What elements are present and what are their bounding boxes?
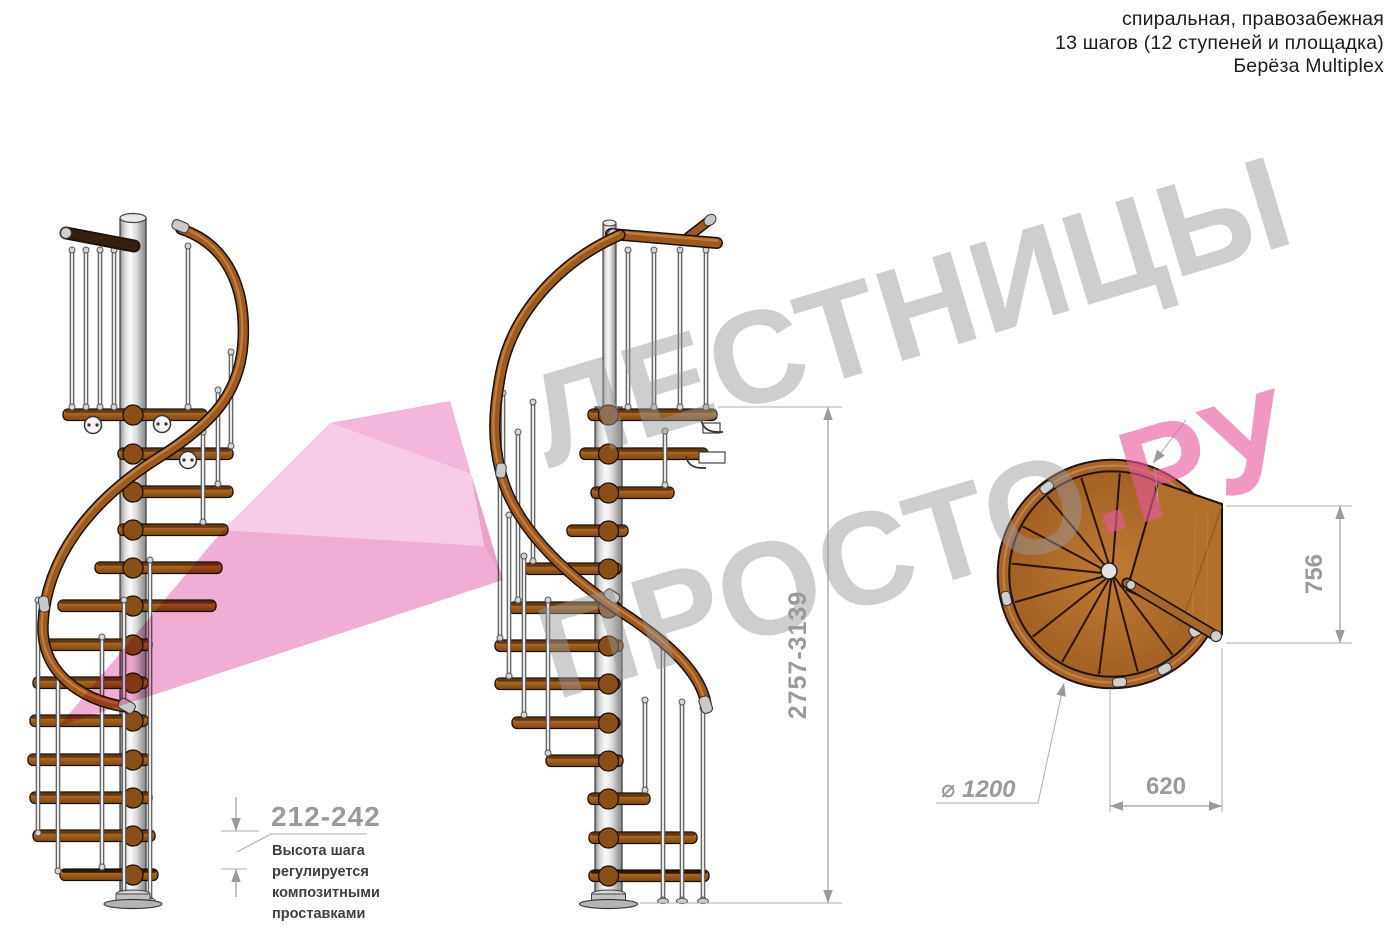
mount-screw <box>95 423 98 426</box>
mount-screw <box>164 422 167 425</box>
step-pole-boss <box>599 828 619 848</box>
handrail-end-ball <box>61 228 72 239</box>
mount-screw <box>87 423 90 426</box>
step-pole-boss <box>599 521 619 541</box>
baluster-joint <box>642 787 648 793</box>
base-flange <box>580 900 638 909</box>
baluster-joint <box>200 519 206 525</box>
baluster-joint <box>121 597 127 603</box>
drawing-canvas: спиральная, правозабежная 13 шагов (12 с… <box>0 0 1400 937</box>
baluster-joint <box>677 247 683 253</box>
dim-diameter-label: ⌀ 1200 <box>941 776 1016 803</box>
handrail-joint <box>38 595 50 612</box>
mount-screw <box>190 458 193 461</box>
baluster-joint <box>147 557 153 563</box>
note-line-2: регулируется <box>272 864 369 880</box>
title-block: спиральная, правозабежная 13 шагов (12 с… <box>1055 8 1384 79</box>
baluster-joint <box>497 635 503 641</box>
dim-arrowhead <box>1335 630 1345 643</box>
dim-arrowhead <box>823 890 833 903</box>
title-material: Берёза Multiplex <box>1055 55 1384 79</box>
step-pole-boss <box>599 483 619 503</box>
baluster-joint <box>651 247 657 253</box>
step-stub <box>699 452 725 463</box>
baluster-joint <box>111 404 117 410</box>
dim-arrowhead <box>231 869 241 882</box>
baluster-joint <box>69 247 75 253</box>
dim-arrowhead <box>1335 506 1345 519</box>
step-pole-boss <box>599 751 619 771</box>
note-line-3: композитными <box>272 885 380 901</box>
mount-disk <box>154 416 171 433</box>
baluster-joint <box>69 404 75 410</box>
dim-arrowhead <box>1057 682 1069 697</box>
base-flange <box>104 900 162 909</box>
dim-arrowhead <box>231 818 241 831</box>
handrail-bottom-cap <box>698 695 714 715</box>
step-pole-boss <box>123 520 143 540</box>
mount-screw <box>156 422 159 425</box>
note-line-1: Высота шага <box>272 843 366 859</box>
baluster-joint <box>83 247 89 253</box>
baluster-joint <box>506 512 512 518</box>
baluster-joint <box>545 750 551 756</box>
baluster-joint <box>228 349 234 355</box>
baluster-joint <box>228 443 234 449</box>
mount-disk <box>85 417 102 434</box>
plan-rail-joint <box>1127 581 1136 590</box>
baluster-joint <box>679 699 685 705</box>
baluster-joint <box>521 712 527 718</box>
dim-step-height: 212-242 Высота шага регулируется компози… <box>221 797 381 922</box>
baluster-joint <box>215 387 221 393</box>
dim-arrowhead <box>1110 801 1123 811</box>
dim-step-height-label: 212-242 <box>271 801 381 832</box>
baluster-joint <box>99 634 105 640</box>
step-pole-boss <box>599 789 619 809</box>
dim-arrowhead <box>1209 801 1222 811</box>
title-type: спиральная, правозабежная <box>1055 8 1384 32</box>
baluster-joint <box>83 404 89 410</box>
step-pole-boss <box>123 444 143 464</box>
baluster-joint <box>215 481 221 487</box>
dim-landing-depth-label: 756 <box>1301 554 1328 594</box>
baluster-joint <box>662 482 668 488</box>
baluster-joint <box>97 247 103 253</box>
dim-exit-width-label: 620 <box>1146 773 1186 800</box>
pole-top-cap <box>120 214 146 223</box>
baluster-joint <box>625 247 631 253</box>
staircase-technical-drawing: 2757-3139 212-242 Высота шага регулирует… <box>0 0 1400 937</box>
plan-center-pole <box>1101 563 1117 579</box>
baluster-joint <box>185 243 191 249</box>
baluster-joint <box>506 673 512 679</box>
baluster-joint <box>185 404 191 410</box>
mount-disk <box>180 452 197 469</box>
watermark-line2-pink: .РУ <box>1065 361 1310 563</box>
mount-screw <box>182 458 185 461</box>
step-pole-boss <box>123 558 143 578</box>
step-pole-boss <box>123 405 143 425</box>
handrail-top-cap <box>171 218 191 234</box>
baluster-joint <box>35 830 41 836</box>
dim-diameter: ⌀ 1200 <box>936 683 1064 803</box>
rim-joint <box>1112 677 1127 687</box>
baluster-joint <box>521 553 527 559</box>
note-line-4: проставками <box>272 906 365 922</box>
step-pole-boss <box>599 866 619 886</box>
title-steps: 13 шагов (12 ступеней и площадка) <box>1055 32 1384 56</box>
step-top-edge <box>132 487 231 490</box>
baluster-joint <box>99 864 105 870</box>
baluster-joint <box>530 558 536 564</box>
handrail-joint <box>495 463 506 479</box>
baluster-joint <box>97 404 103 410</box>
newel-top-cap <box>603 220 616 226</box>
dim-landing-depth: 756 <box>1226 506 1352 643</box>
step-pole-boss <box>599 713 619 733</box>
baluster-joint <box>515 597 521 603</box>
baluster-joint <box>55 868 61 874</box>
baluster-joint <box>515 429 521 435</box>
plan-rail-end-cap <box>1211 631 1222 642</box>
